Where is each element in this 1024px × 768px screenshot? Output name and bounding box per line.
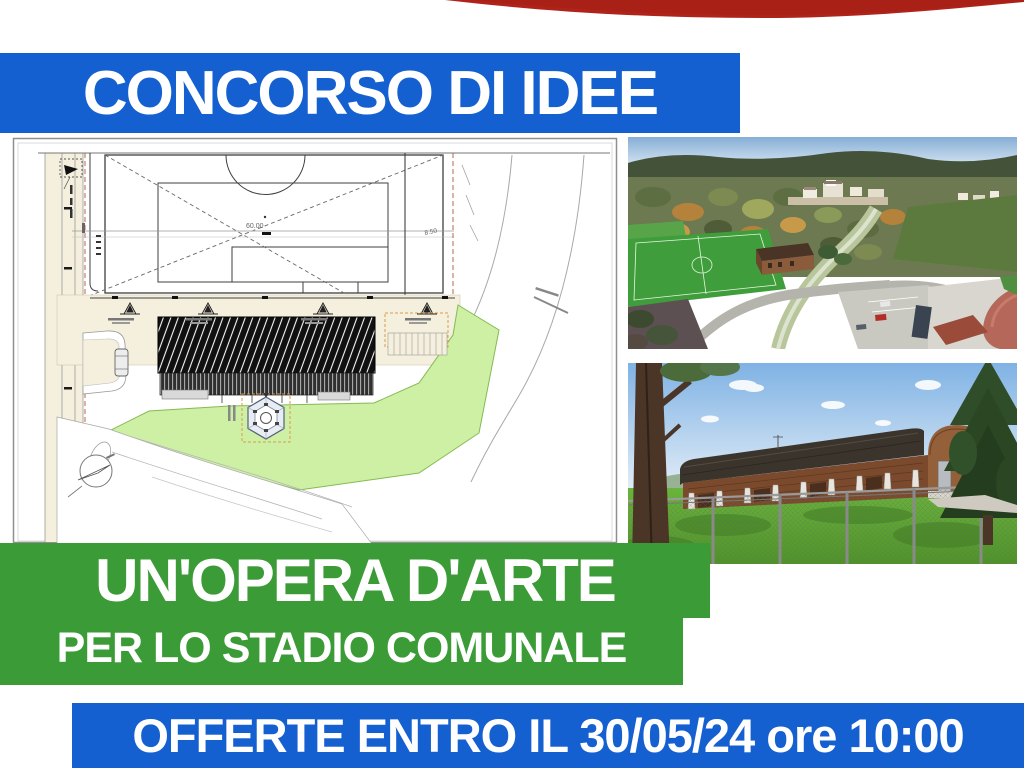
headline-text-line1: UN'OPERA D'ARTE [95, 546, 615, 615]
headline-banner-line1: UN'OPERA D'ARTE [0, 543, 710, 618]
aerial-tree [834, 253, 852, 265]
dimension-label-60: 60.00 [246, 223, 264, 230]
building-render-photo [628, 363, 1017, 564]
deadline-text: OFFERTE ENTRO IL 30/05/24 ore 10:00 [132, 708, 963, 763]
site-plan-drawing: 60.00 8.50 [12, 137, 618, 544]
grandstand-building [158, 317, 375, 403]
deadline-banner: OFFERTE ENTRO IL 30/05/24 ore 10:00 [72, 703, 1024, 768]
headline-banner-line2: PER LO STADIO COMUNALE [0, 618, 683, 685]
aerial-view-photo: ​ [628, 137, 1017, 349]
title-banner: CONCORSO DI IDEE [0, 53, 740, 133]
parked-car-symbol [115, 349, 128, 376]
plan-driveway-loop [83, 331, 128, 394]
aerial-foreground-brush [628, 299, 708, 349]
red-swoosh-graphic [0, 0, 1024, 30]
soccer-field-plan [90, 153, 443, 293]
headline-text-line2: PER LO STADIO COMUNALE [57, 624, 627, 673]
poster-title: CONCORSO DI IDEE [83, 58, 657, 129]
contest-poster: CONCORSO DI IDEE [0, 0, 1024, 768]
